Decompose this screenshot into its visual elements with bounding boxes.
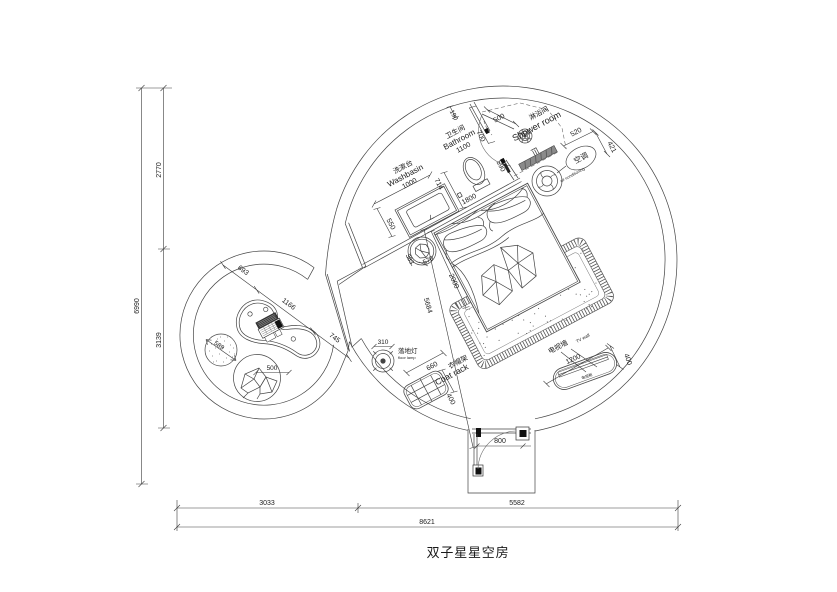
svg-text:floor lamp: floor lamp (398, 355, 416, 360)
svg-text:800: 800 (494, 438, 506, 445)
svg-text:2770: 2770 (156, 162, 163, 178)
svg-text:落地灯: 落地灯 (398, 346, 418, 355)
svg-text:3033: 3033 (259, 500, 275, 507)
svg-text:双子星星空房: 双子星星空房 (427, 545, 510, 560)
svg-text:3139: 3139 (156, 332, 163, 348)
svg-text:5582: 5582 (509, 500, 525, 507)
svg-text:8621: 8621 (419, 519, 435, 526)
svg-text:6990: 6990 (134, 298, 141, 314)
svg-text:310: 310 (378, 339, 389, 346)
svg-text:500: 500 (267, 365, 278, 372)
